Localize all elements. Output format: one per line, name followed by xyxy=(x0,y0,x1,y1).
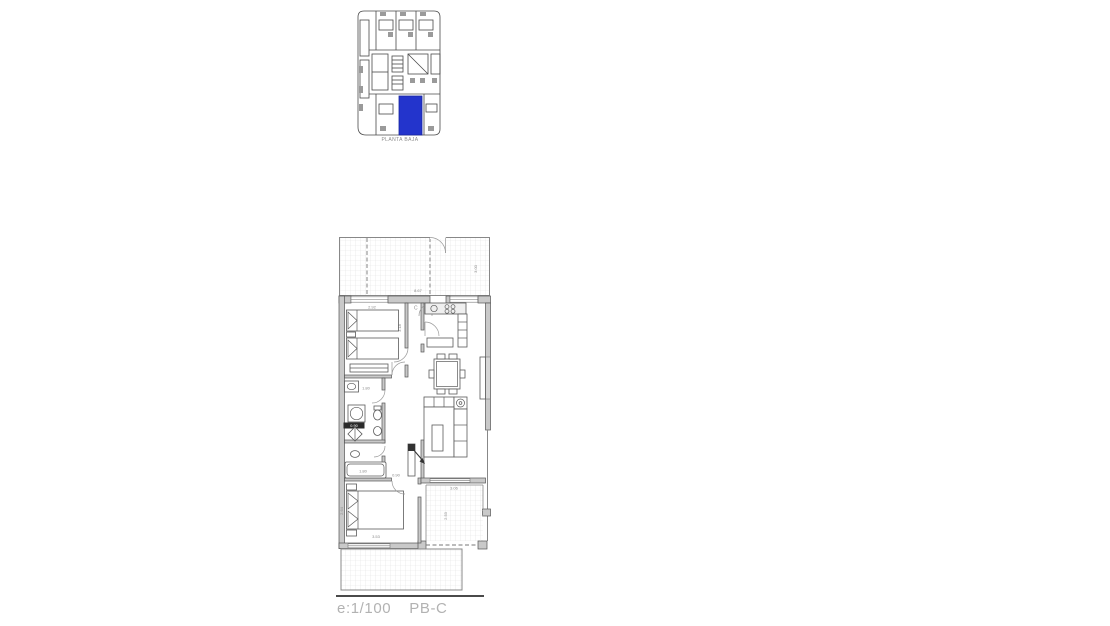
chair xyxy=(449,389,457,394)
bedroom-1: 2.92 xyxy=(347,305,399,373)
scale-label: e:1/100 xyxy=(337,600,391,617)
dining-table xyxy=(434,359,460,389)
dimension-label: 2.92 xyxy=(368,305,377,310)
footer-rule xyxy=(336,595,484,597)
sink-icon xyxy=(351,451,360,458)
dining-area xyxy=(429,354,486,399)
dimension-label: 8.67 xyxy=(414,288,423,293)
dimension-label: 3.53 xyxy=(372,534,381,539)
bidet-icon xyxy=(374,427,382,436)
sofa-back xyxy=(424,397,454,407)
dimension-label: 2.53 xyxy=(443,511,448,520)
chair xyxy=(437,354,445,359)
double-bed xyxy=(347,491,404,529)
chair xyxy=(460,370,465,378)
site-plan-label: PLANTA BAJA xyxy=(350,137,450,143)
plan-code-label: PB-C xyxy=(409,600,447,617)
highlighted-unit xyxy=(399,96,422,135)
living-room xyxy=(424,397,467,457)
dimension-label: 1.80 xyxy=(359,469,368,474)
sofa-right xyxy=(454,409,467,457)
dimension-label: 3.00 xyxy=(473,264,478,273)
door-arc xyxy=(374,446,385,457)
bedroom-2: 3.53 2.64 xyxy=(339,481,405,539)
dimension-label: 2.64 xyxy=(339,506,344,515)
single-bed xyxy=(347,338,399,359)
nightstand xyxy=(347,530,357,536)
site-plan-graphic xyxy=(352,8,448,138)
door-arc xyxy=(372,390,385,403)
footer: e:1/100 PB-C xyxy=(337,600,448,617)
dimension-label: 0.90 xyxy=(392,473,401,478)
dimension-label: 3.06 xyxy=(450,486,459,491)
fridge-appliance-column xyxy=(458,314,467,347)
nightstand xyxy=(347,332,356,337)
kitchen-peninsula xyxy=(427,338,453,347)
sideboard xyxy=(480,357,486,399)
terrace-bottom xyxy=(341,549,462,590)
floor-plan-graphic: 8.67 3.00 xyxy=(330,225,500,600)
bathroom-1: 1.80 0.90 xyxy=(344,381,386,441)
terrace-top: 8.67 3.00 xyxy=(340,236,490,296)
patio: 3.06 2.53 xyxy=(426,485,483,541)
chair xyxy=(429,370,434,378)
entrance: 0.90 xyxy=(392,444,425,478)
bathroom-2: 1.80 xyxy=(345,446,386,478)
plan-sheet: PLANTA BAJA 8.67 3.00 xyxy=(0,0,1110,626)
vanity xyxy=(345,381,359,392)
single-bed xyxy=(347,310,399,331)
door-arc xyxy=(425,322,439,336)
nightstand xyxy=(347,484,357,490)
unit-label: C xyxy=(414,306,418,312)
chair xyxy=(449,354,457,359)
dimension-label: 1.80 xyxy=(362,386,371,391)
kitchen xyxy=(425,303,467,347)
chair xyxy=(437,389,445,394)
toilet-tank xyxy=(374,406,381,410)
door-arc xyxy=(392,362,405,375)
coffee-table xyxy=(432,425,443,451)
toilet-icon xyxy=(374,410,382,420)
